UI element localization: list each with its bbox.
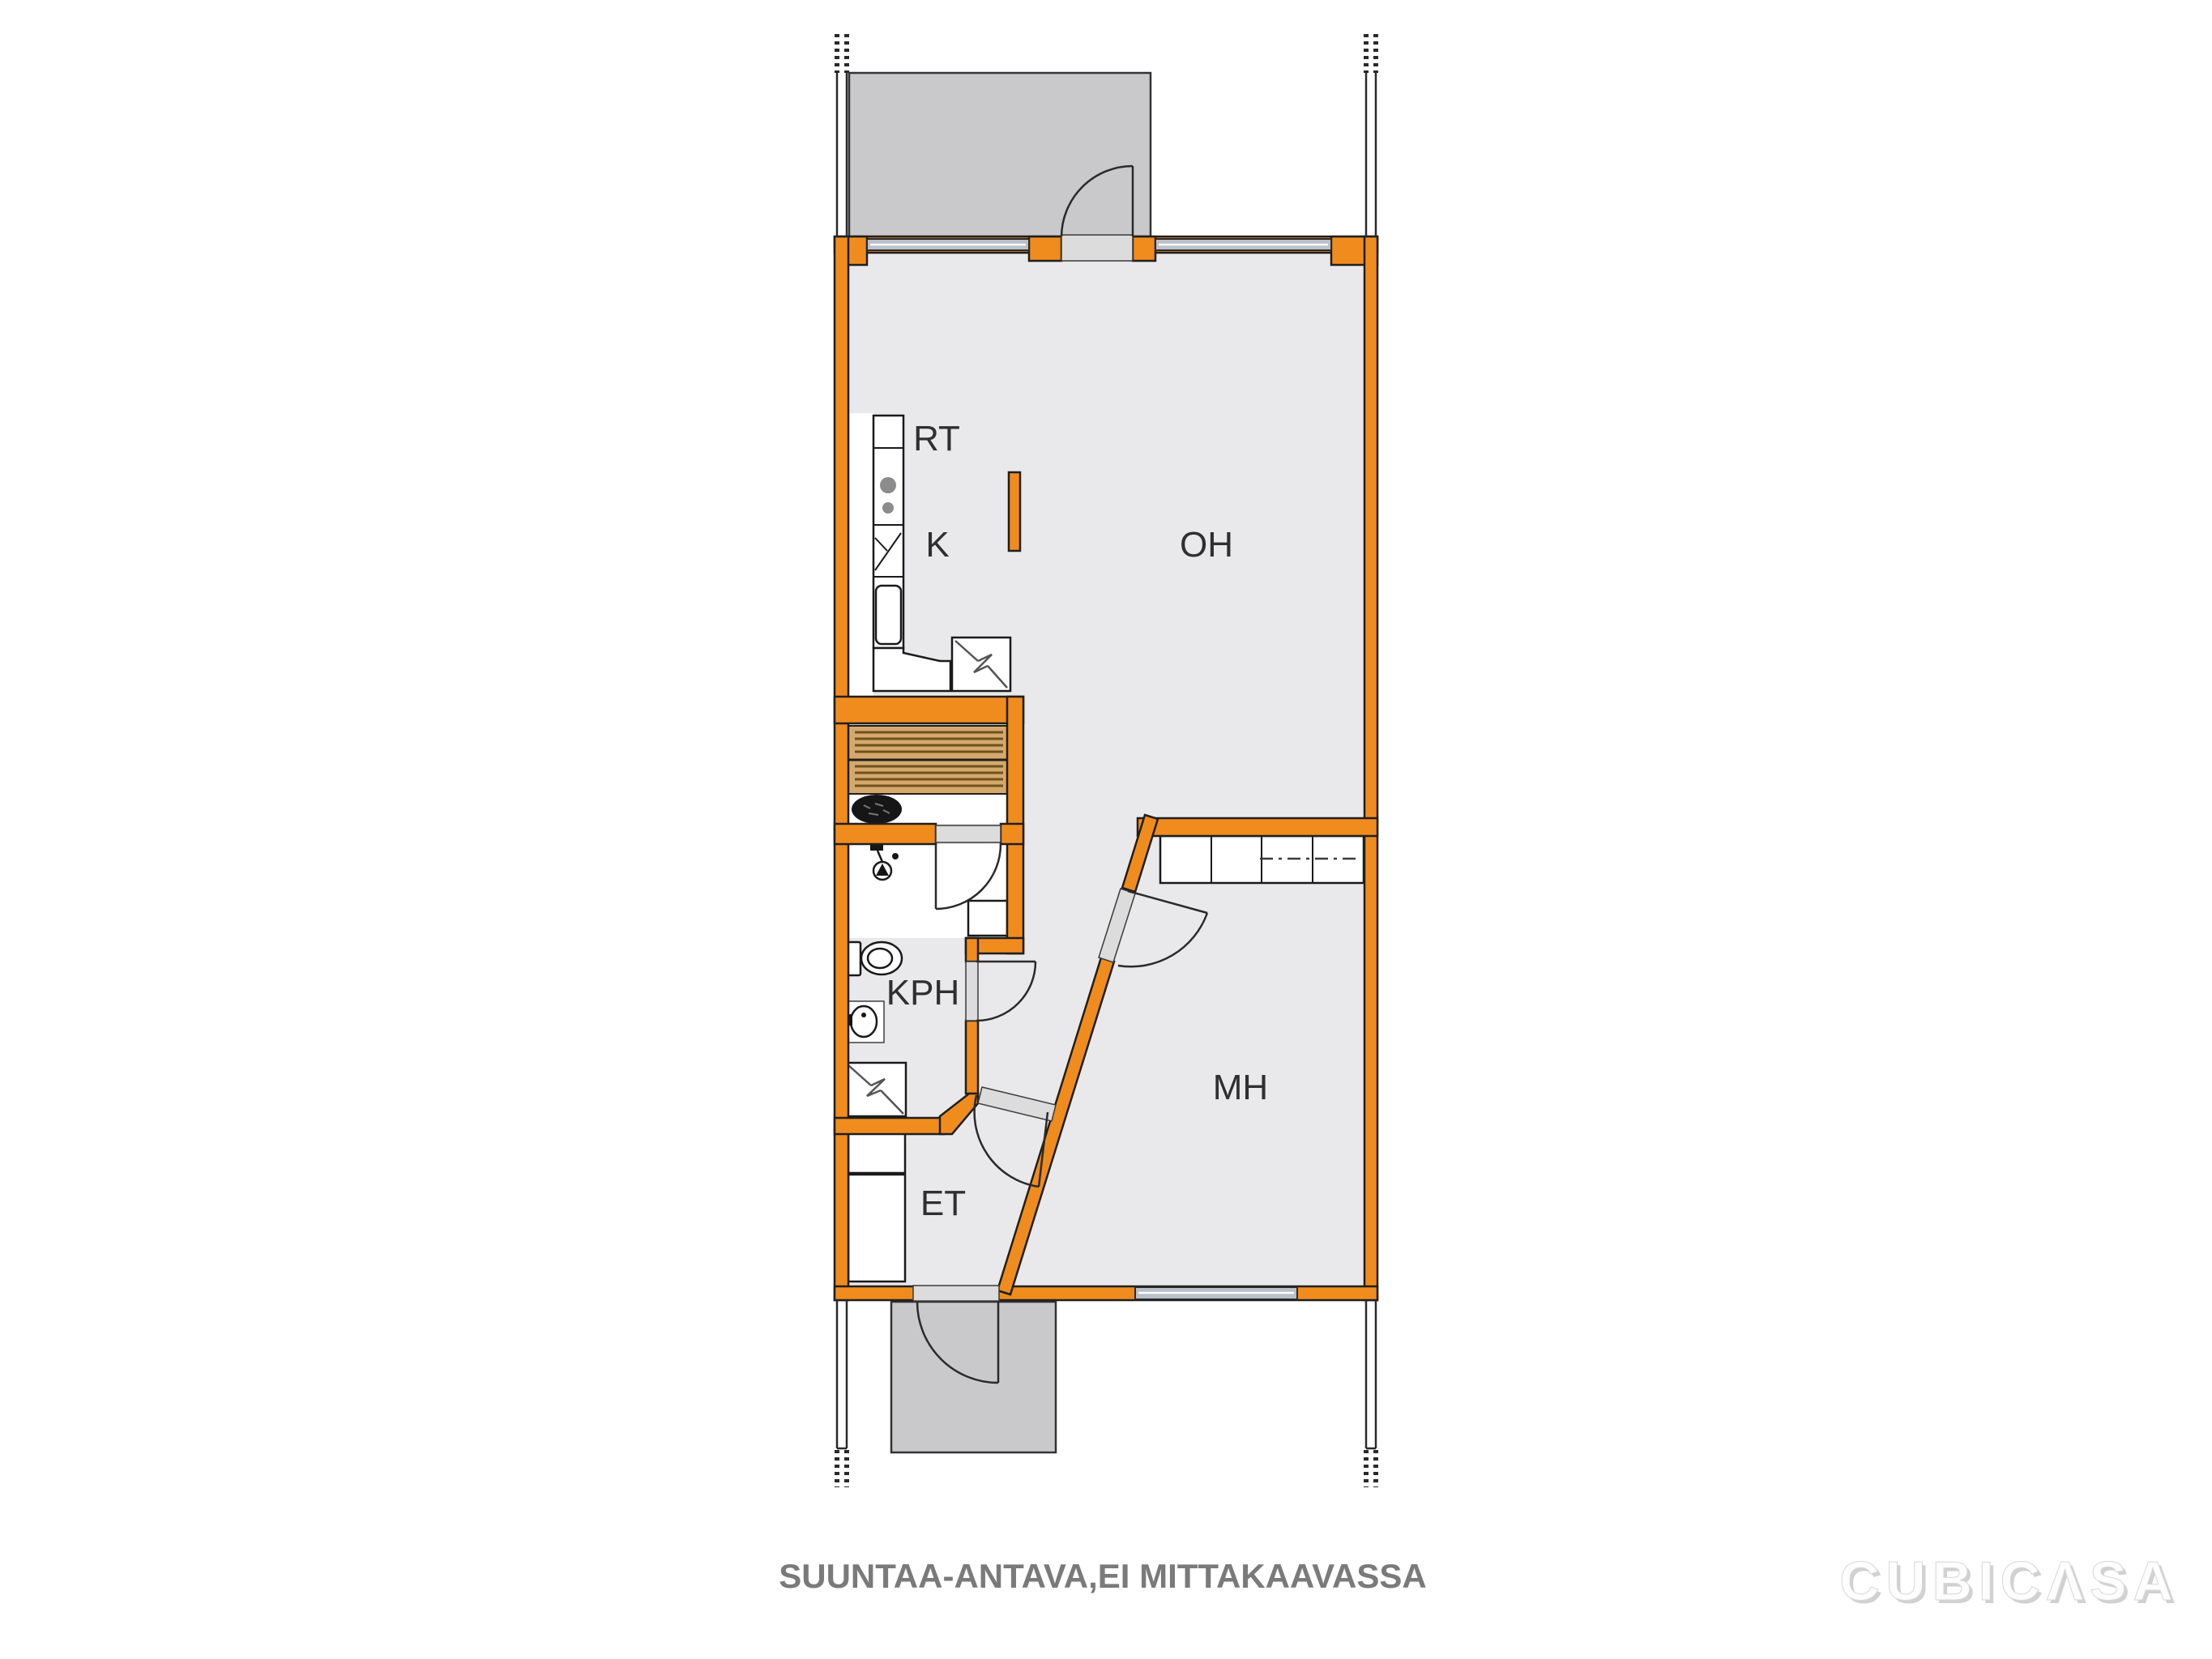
wall-segment — [1001, 824, 1023, 844]
wall-segment — [835, 237, 848, 1300]
room-label-kph: KPH — [886, 973, 959, 1013]
door-threshold — [966, 962, 978, 1021]
wall-segment — [966, 938, 978, 962]
room-label-k: K — [925, 525, 949, 565]
washer-reservation-icon — [847, 1063, 906, 1116]
room-label-rt: RT — [913, 419, 960, 458]
duct-shaft — [968, 901, 1007, 936]
door-threshold — [936, 825, 1001, 842]
room-label-mh: MH — [1213, 1068, 1268, 1107]
wall-segment — [1138, 818, 1377, 836]
entrance-porch — [891, 1302, 1056, 1452]
entry-closets — [848, 1126, 905, 1282]
kitchen-zigzag-counter — [952, 638, 1010, 691]
washbasin-icon — [846, 1001, 884, 1043]
wall-segment — [1029, 237, 1061, 261]
door-threshold — [1061, 235, 1133, 261]
floor-plan-canvas: RT K OH KPH MH ET SUUNTAA-ANTAVA,EI MITT… — [0, 0, 2212, 1659]
party-wall-marker — [1366, 1300, 1376, 1487]
toilet-icon — [843, 942, 902, 975]
kitchen-island-wall — [1009, 472, 1020, 551]
wardrobe-row — [1160, 836, 1364, 883]
floor-plan-page: RT K OH KPH MH ET SUUNTAA-ANTAVA,EI MITT… — [0, 0, 2212, 1659]
sauna-benches — [848, 726, 1007, 794]
svg-text:CUBICΛSA: CUBICΛSA — [1839, 1550, 2179, 1612]
wall-segment — [1364, 237, 1377, 1300]
fridge-icon — [876, 586, 901, 644]
room-label-oh: OH — [1180, 525, 1233, 565]
disclaimer-text: SUUNTAA-ANTAVA,EI MITTAKAAVASSA — [779, 1557, 1427, 1595]
sauna-heater-icon — [852, 795, 902, 824]
kitchen-floor-strip — [848, 413, 873, 697]
cubicasa-watermark: CUBICΛSA CUBICΛSA — [1839, 1550, 2182, 1615]
wall-segment — [1133, 237, 1155, 261]
wall-segment — [835, 697, 1023, 723]
wall-segment — [835, 824, 936, 844]
wall-segment — [966, 1021, 978, 1094]
door-threshold — [913, 1286, 999, 1301]
room-label-et: ET — [920, 1183, 966, 1223]
party-wall-marker — [837, 34, 847, 237]
party-wall-marker — [1366, 34, 1376, 237]
wall-segment — [835, 1118, 944, 1134]
balcony-terrace — [849, 73, 1151, 237]
party-wall-marker — [837, 1300, 847, 1487]
